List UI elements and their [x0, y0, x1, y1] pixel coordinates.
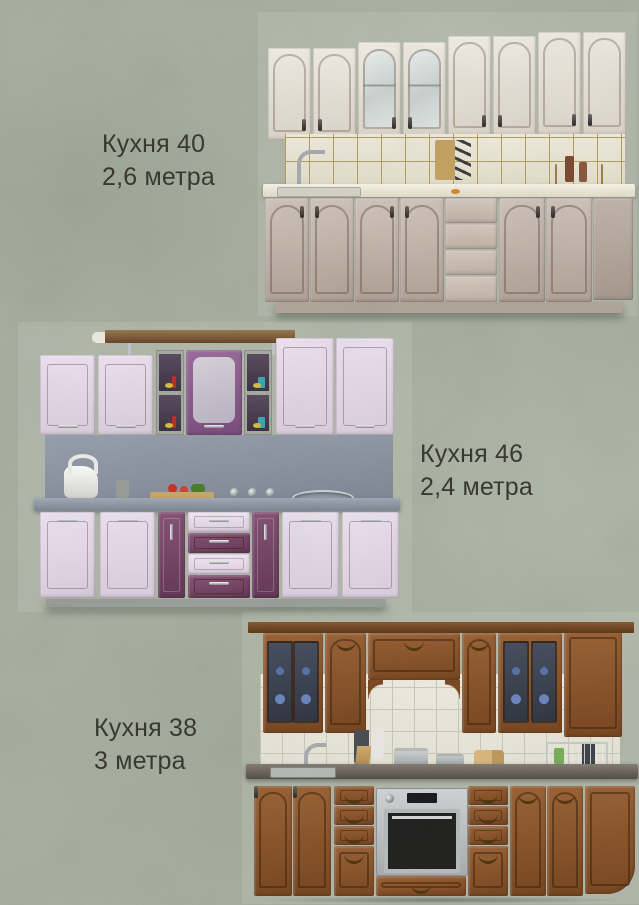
- drawer-stack: [445, 198, 497, 302]
- base-door: [282, 512, 339, 598]
- cornice: [248, 622, 634, 633]
- kitchen-46-caption: Кухня 46 2,4 метра: [420, 438, 533, 504]
- base-door: [342, 512, 399, 598]
- plum-door: [158, 512, 185, 598]
- worktop: [34, 498, 400, 511]
- wall-door: [462, 633, 496, 733]
- floor-shadow: [256, 896, 626, 904]
- hob-knob: [248, 488, 257, 497]
- drawer: [468, 786, 508, 805]
- base-door: [265, 198, 309, 302]
- kitchen-40: [263, 18, 635, 318]
- cup: [116, 480, 129, 498]
- end-wall-cabinet: [564, 631, 622, 737]
- knife-rack: [435, 140, 471, 180]
- drawer: [334, 786, 374, 805]
- sink-base-door: [254, 786, 292, 896]
- drawer-stack: [468, 786, 508, 896]
- dish: [554, 748, 564, 764]
- wall-door: [40, 355, 95, 435]
- drawer: [445, 224, 497, 249]
- open-shelf-unit: [156, 350, 184, 435]
- base-door: [100, 512, 155, 598]
- cabinet-door: [493, 36, 536, 136]
- glass-pane: [193, 357, 235, 423]
- base-door: [355, 198, 399, 302]
- kitchen-46-name: Кухня 46: [420, 438, 533, 471]
- base-door: [510, 786, 546, 896]
- jar: [579, 162, 587, 182]
- hob-knob: [230, 488, 239, 497]
- shelf-bracket: [272, 343, 275, 355]
- built-in-oven: [376, 788, 468, 876]
- base-door: [310, 198, 354, 302]
- glass-wall-cabinet: [498, 633, 562, 733]
- drawer: [468, 806, 508, 825]
- base-door: [400, 198, 444, 302]
- drawer: [445, 276, 497, 302]
- shelf-cell: [159, 395, 181, 431]
- oven-handle: [392, 816, 452, 819]
- base-door: [546, 198, 592, 302]
- kitchen-38: [246, 616, 638, 904]
- drawer: [445, 250, 497, 275]
- drawer: [188, 512, 250, 532]
- cabinet-door: [268, 48, 311, 140]
- wall-door: [98, 355, 153, 435]
- kitchen-38-size: 3 метра: [94, 745, 197, 778]
- glass-pane-plates: [267, 641, 293, 723]
- arch-fillet: [368, 680, 383, 699]
- arch-fillet: [445, 680, 460, 699]
- drawer: [188, 554, 250, 574]
- plinth: [275, 302, 623, 313]
- glass-centre-door: [186, 350, 242, 435]
- base-door: [40, 512, 95, 598]
- plinth: [46, 599, 386, 607]
- oven-door: [384, 809, 460, 873]
- shelf-cell: [247, 395, 269, 431]
- glass-wall-cabinet: [263, 633, 323, 733]
- drawer: [334, 806, 374, 825]
- glass-pane-plates: [293, 641, 319, 723]
- cabinet-door: [538, 32, 581, 135]
- shelf-cell: [247, 354, 269, 391]
- kitchen-46-size: 2,4 метра: [420, 471, 533, 504]
- drawer: [468, 826, 508, 845]
- cabinet-door: [448, 36, 491, 136]
- towel-light: [371, 728, 384, 759]
- kitchen-40-size: 2,6 метра: [102, 161, 215, 194]
- jar: [565, 156, 574, 182]
- kitchen-38-caption: Кухня 38 3 метра: [94, 712, 197, 778]
- glass-cabinet-door: [358, 42, 401, 138]
- kitchen-40-caption: Кухня 40 2,6 метра: [102, 128, 215, 194]
- drawer-stack: [188, 512, 250, 598]
- drawer-stack: [334, 786, 374, 896]
- base-door: [547, 786, 583, 896]
- sink-base-door: [293, 786, 331, 896]
- drawer: [188, 575, 250, 598]
- oven-display: [407, 793, 437, 803]
- base-door: [499, 198, 545, 302]
- kettle-handle: [68, 454, 98, 474]
- shelf-bracket: [128, 343, 131, 355]
- oven-knob: [385, 794, 394, 803]
- glass-pane-plates: [503, 641, 529, 723]
- wall-door: [276, 338, 334, 435]
- shelf-cell: [159, 354, 181, 391]
- open-shelf-unit: [244, 350, 272, 435]
- kitchen-46: [28, 326, 406, 610]
- sink: [270, 767, 336, 778]
- wall-door: [336, 338, 394, 435]
- glass-pane-plates: [531, 641, 557, 723]
- cabinet-door: [313, 48, 356, 140]
- kitchen-38-name: Кухня 38: [94, 712, 197, 745]
- top-shelf: [105, 330, 295, 343]
- deep-drawer: [468, 846, 508, 896]
- drawer: [188, 533, 250, 553]
- glass-cabinet-door: [403, 42, 446, 138]
- rounded-end-cabinet: [585, 786, 635, 894]
- drawer: [334, 826, 374, 845]
- kitchen-40-name: Кухня 40: [102, 128, 215, 161]
- fruit: [451, 189, 460, 194]
- deep-drawer: [334, 846, 374, 896]
- arch-top-cabinet: [368, 633, 460, 680]
- drawer: [445, 198, 497, 223]
- plum-door: [252, 512, 279, 598]
- hob-knob: [266, 488, 275, 497]
- end-panel: [593, 198, 633, 300]
- cabinet-door: [583, 32, 626, 135]
- sink: [277, 187, 361, 197]
- catalog-page: { "page": { "background_color": "#a9b1a2…: [0, 0, 639, 905]
- wall-door: [325, 633, 366, 733]
- oven-base-drawer: [376, 876, 466, 896]
